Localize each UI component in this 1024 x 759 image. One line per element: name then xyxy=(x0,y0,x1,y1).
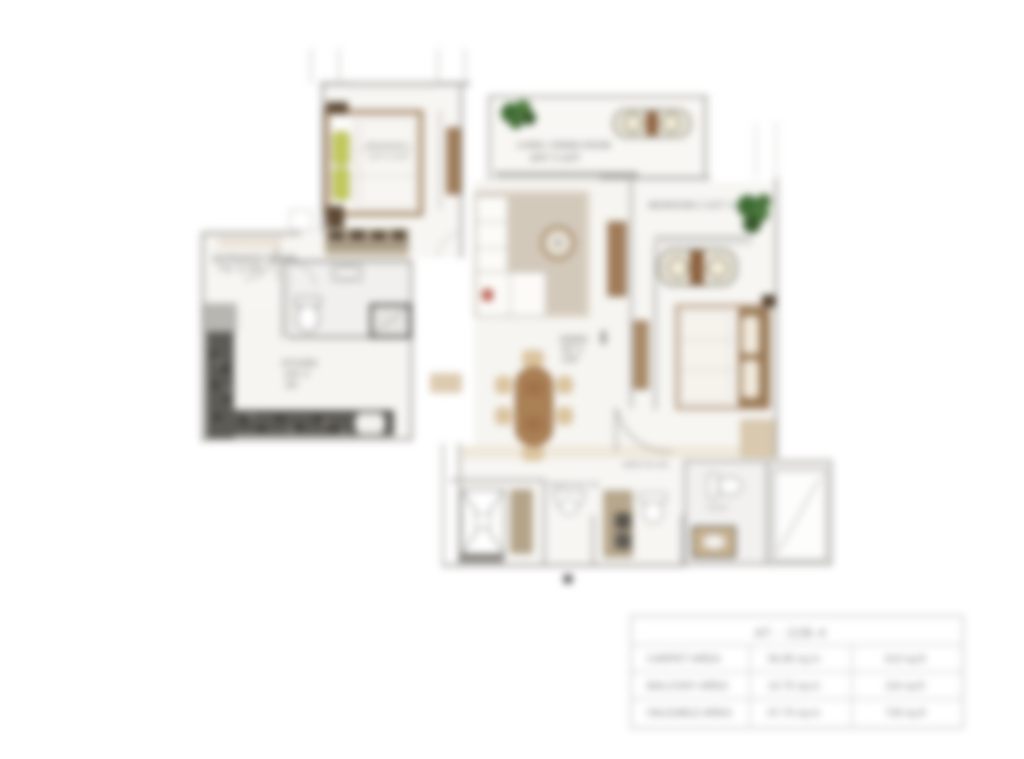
svg-text:CARPET AREA: CARPET AREA xyxy=(647,653,720,665)
svg-text:10.75 sq.m: 10.75 sq.m xyxy=(768,680,820,692)
svg-text:SALEABLE AREA: SALEABLE AREA xyxy=(647,707,732,719)
svg-text:TOILET 4'0 X 7'6: TOILET 4'0 X 7'6 xyxy=(549,482,599,489)
svg-text:11'0" X 12'0": 11'0" X 12'0" xyxy=(368,152,410,161)
svg-text:KITCHEN: KITCHEN xyxy=(282,359,317,368)
svg-text:10'0" X: 10'0" X xyxy=(284,370,310,379)
svg-text:BATH 7'6 X 4'6: BATH 7'6 X 4'6 xyxy=(624,462,668,469)
svg-text:BALCONY AREA: BALCONY AREA xyxy=(647,680,728,692)
svg-text:613 sq.ft: 613 sq.ft xyxy=(885,653,925,665)
svg-text:7'6" X 4'6": 7'6" X 4'6" xyxy=(218,264,264,274)
svg-text:20'0" X 12'0": 20'0" X 12'0" xyxy=(530,153,581,163)
svg-text:56.95 sq.m: 56.95 sq.m xyxy=(768,653,820,665)
svg-text:BEDROOM 1: BEDROOM 1 xyxy=(366,141,411,150)
svg-text:LIVING / DINING ROOM: LIVING / DINING ROOM xyxy=(517,140,611,150)
svg-text:67.70 sq.m: 67.70 sq.m xyxy=(768,707,820,719)
svg-text:AT - 22B-4: AT - 22B-4 xyxy=(755,626,827,640)
svg-text:TOILET: TOILET xyxy=(706,505,729,512)
svg-text:8'0" X: 8'0" X xyxy=(562,345,583,354)
svg-text:116 sq.ft: 116 sq.ft xyxy=(885,680,925,692)
svg-text:DINING: DINING xyxy=(560,335,588,344)
svg-text:729 sq.ft: 729 sq.ft xyxy=(885,707,925,719)
svg-text:10'6": 10'6" xyxy=(562,355,580,364)
svg-text:8'0": 8'0" xyxy=(286,381,299,390)
